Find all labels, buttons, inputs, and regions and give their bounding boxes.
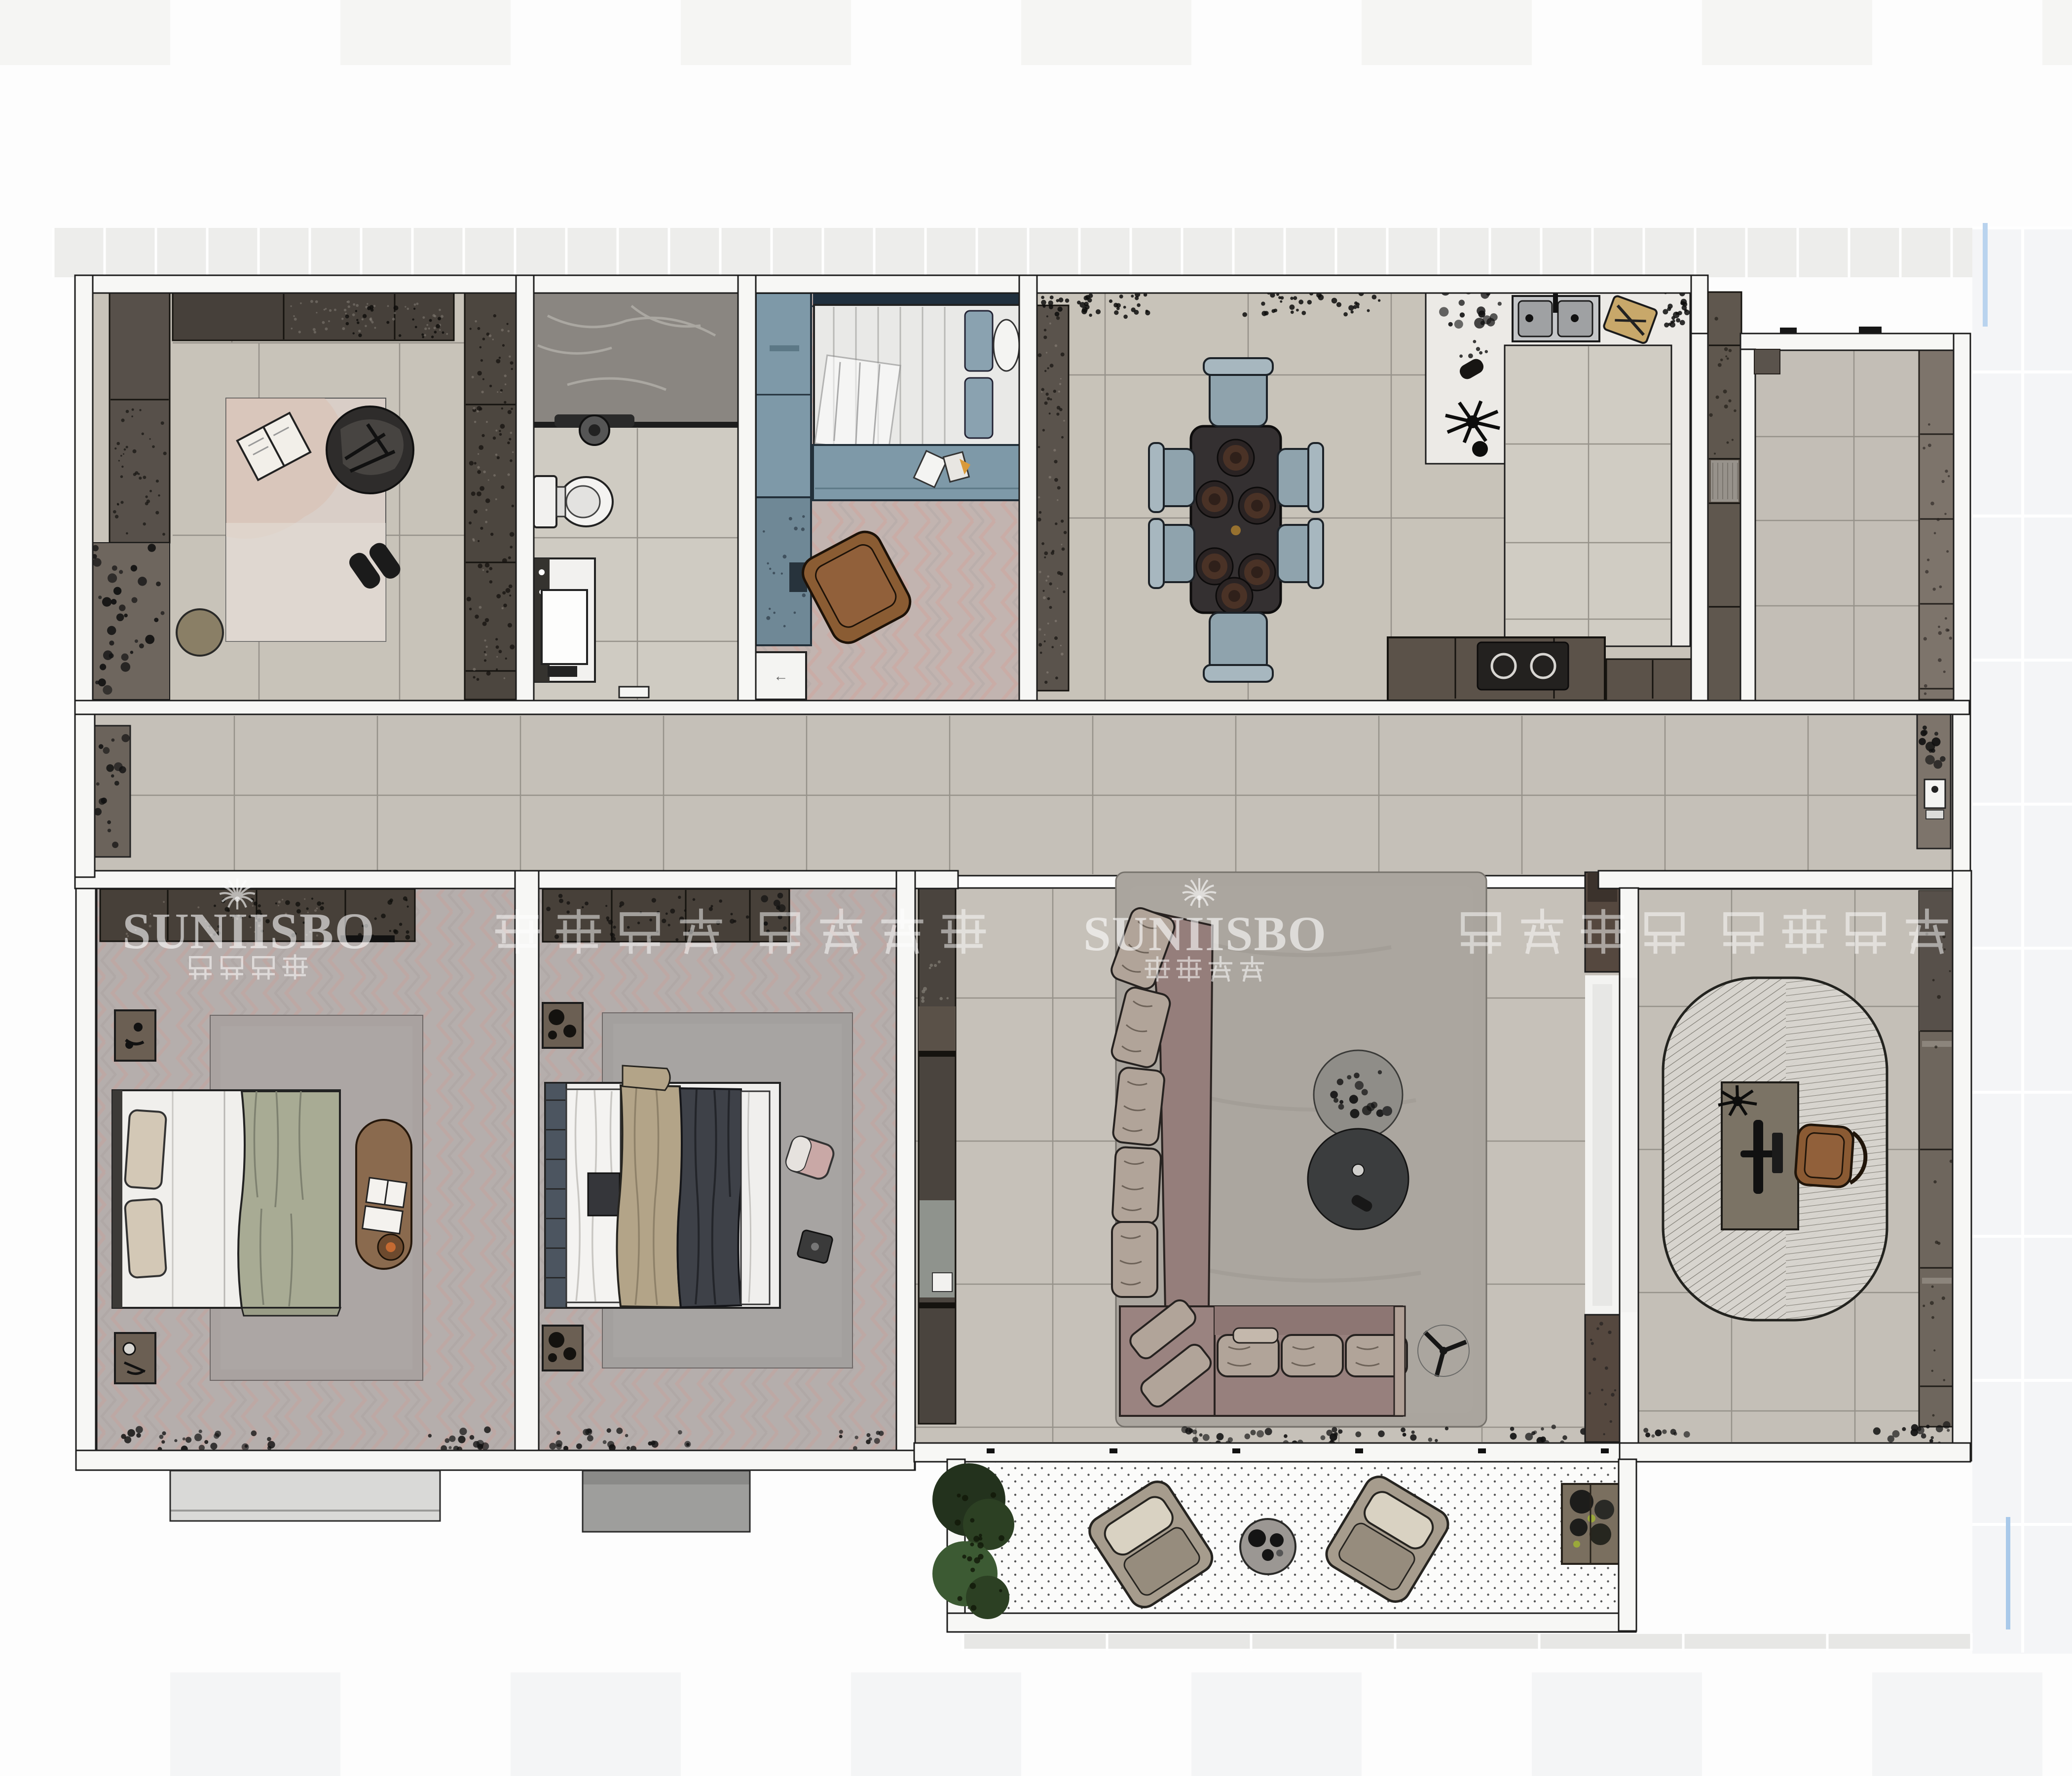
svg-text:SUNIISBO: SUNIISBO [122,903,375,960]
svg-text:SUNIISBO: SUNIISBO [1083,906,1327,961]
svg-text:←: ← [774,668,788,684]
